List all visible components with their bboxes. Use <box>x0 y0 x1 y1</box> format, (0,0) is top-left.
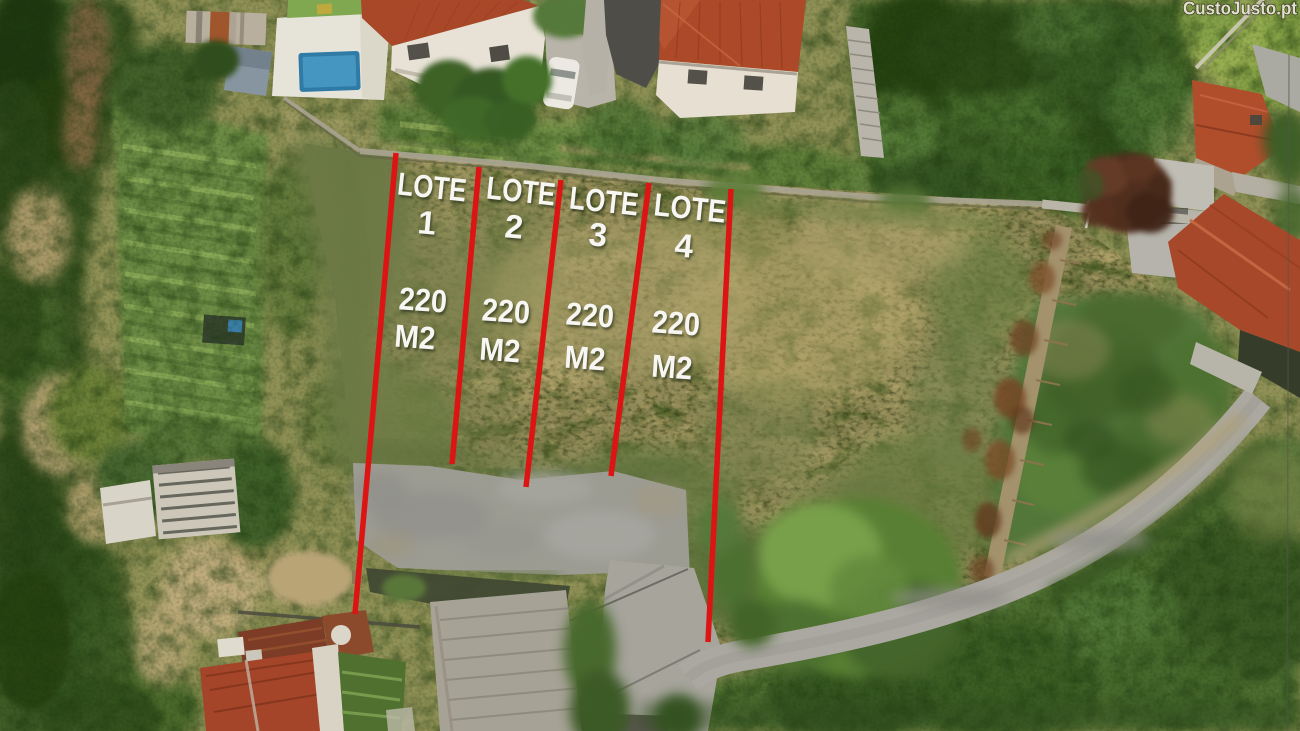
svg-text:M2: M2 <box>393 318 436 357</box>
svg-text:LOTE: LOTE <box>652 186 727 229</box>
svg-text:CustoJusto.pt: CustoJusto.pt <box>1183 0 1297 19</box>
svg-text:220: 220 <box>565 295 615 334</box>
svg-text:220: 220 <box>651 303 701 342</box>
svg-text:2: 2 <box>503 207 525 245</box>
svg-text:LOTE: LOTE <box>396 165 468 208</box>
svg-text:220: 220 <box>481 291 531 330</box>
svg-text:M2: M2 <box>563 339 606 378</box>
svg-text:M2: M2 <box>478 331 521 370</box>
svg-text:220: 220 <box>398 280 448 319</box>
svg-text:1: 1 <box>416 203 438 241</box>
svg-text:M2: M2 <box>650 348 693 387</box>
svg-text:LOTE: LOTE <box>485 169 557 212</box>
svg-text:3: 3 <box>587 215 609 253</box>
